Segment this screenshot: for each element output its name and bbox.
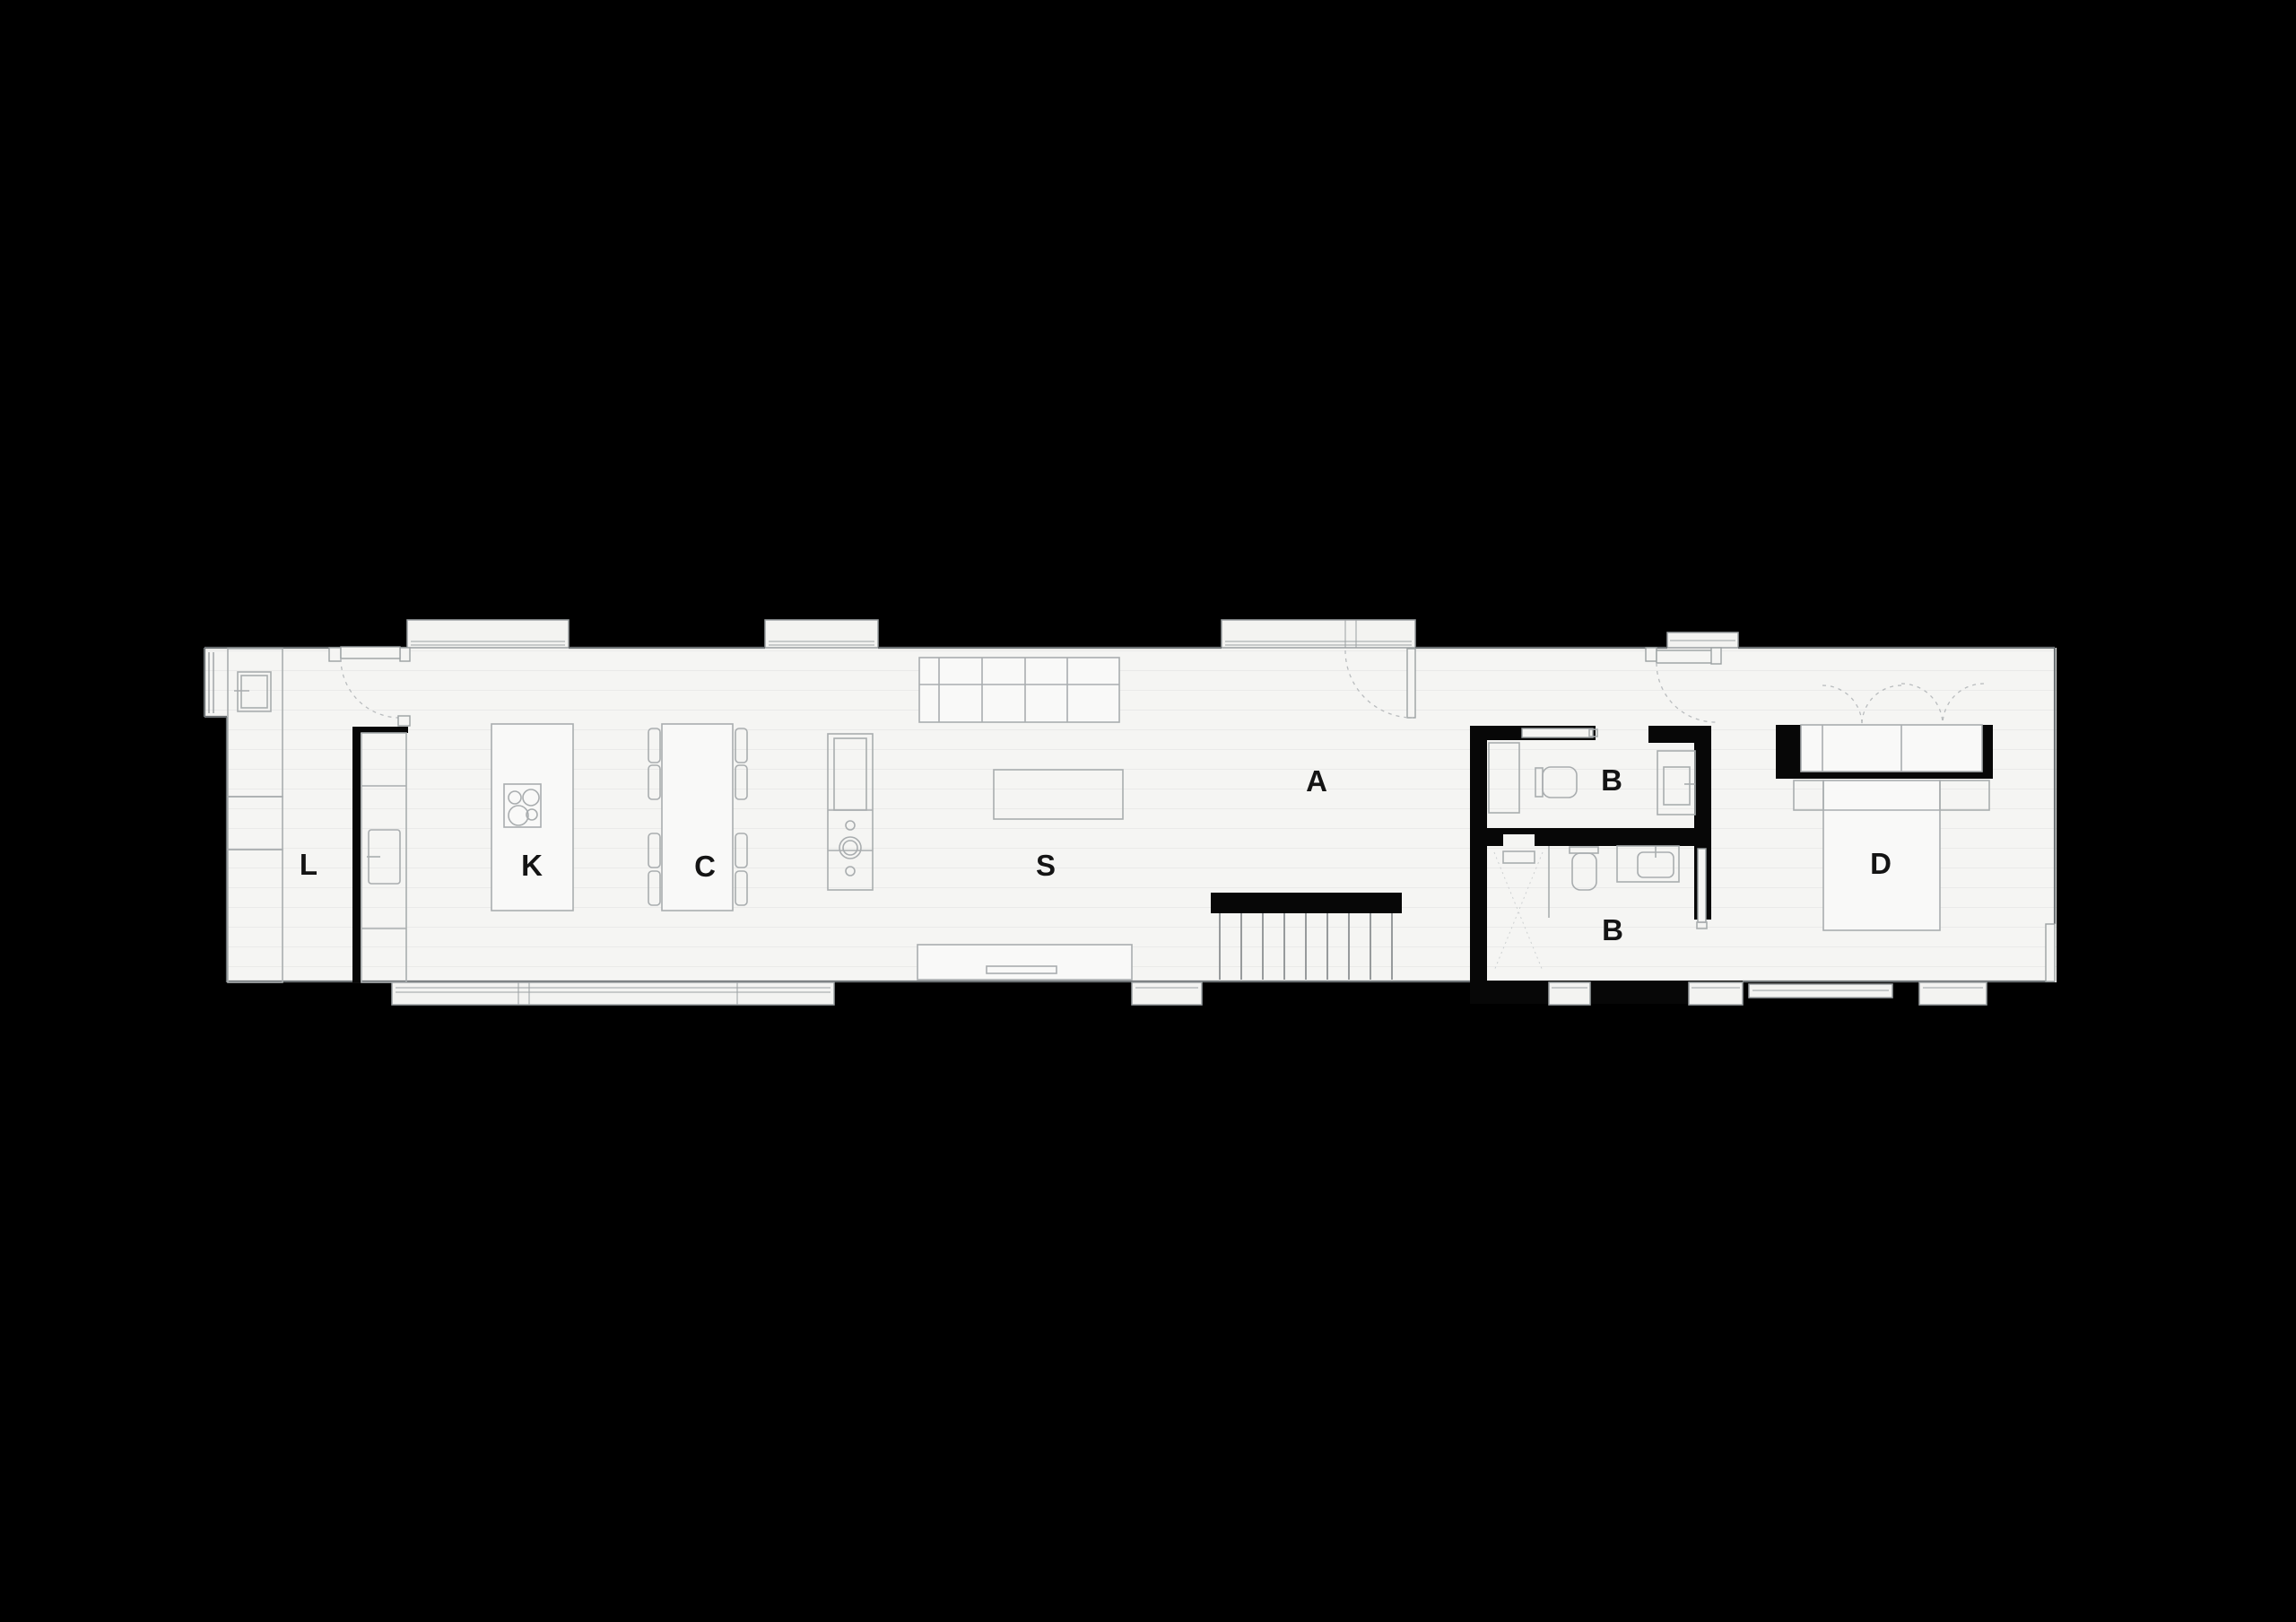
- room-label-dining: C: [694, 850, 716, 883]
- window-bay: [1222, 620, 1415, 648]
- headboard-wall: [1794, 772, 1989, 779]
- sectional-sofa: [919, 658, 1119, 722]
- kitchen-fixtures: [491, 724, 573, 911]
- room-label-utility: L: [300, 848, 317, 881]
- room-label-bathroom-1: B: [1601, 763, 1622, 797]
- stair-landing-wall: [1211, 893, 1402, 913]
- bath-west-wall: [1470, 726, 1487, 981]
- pocket-door: [1698, 849, 1706, 922]
- side-glass-door: [2046, 924, 2055, 981]
- window-bay: [1919, 982, 1987, 1005]
- window-bay: [1549, 982, 1590, 1005]
- floor-plate: [204, 648, 2057, 982]
- door-leaf: [1657, 650, 1716, 663]
- bedroom-wall: [1776, 725, 1801, 779]
- window-bay: [1689, 982, 1743, 1005]
- wardrobe: [1801, 725, 1982, 772]
- media-cabinet: [918, 945, 1132, 980]
- window-bay: [765, 620, 878, 648]
- room-label-bathroom-2: B: [1602, 913, 1623, 946]
- room-label-living: A: [1306, 764, 1327, 798]
- pocket-door: [1522, 728, 1593, 737]
- floor-plan-canvas: L K C S A B B D: [0, 0, 2296, 1622]
- window-bays-south: [392, 982, 1987, 1005]
- door-leaf: [1407, 649, 1415, 718]
- room-label-sitting: S: [1036, 849, 1056, 882]
- window-bay: [407, 620, 569, 648]
- floor-plan-drawing: L K C S A B B D: [0, 0, 2296, 1622]
- room-label-kitchen: K: [521, 849, 543, 882]
- sliding-glass-doors: [392, 982, 834, 1005]
- door-leaf: [341, 647, 400, 658]
- window-bay: [1132, 982, 1202, 1005]
- window-bays-north: [407, 620, 1738, 648]
- wall-utility: [352, 727, 361, 982]
- room-label-bedroom: D: [1870, 847, 1892, 880]
